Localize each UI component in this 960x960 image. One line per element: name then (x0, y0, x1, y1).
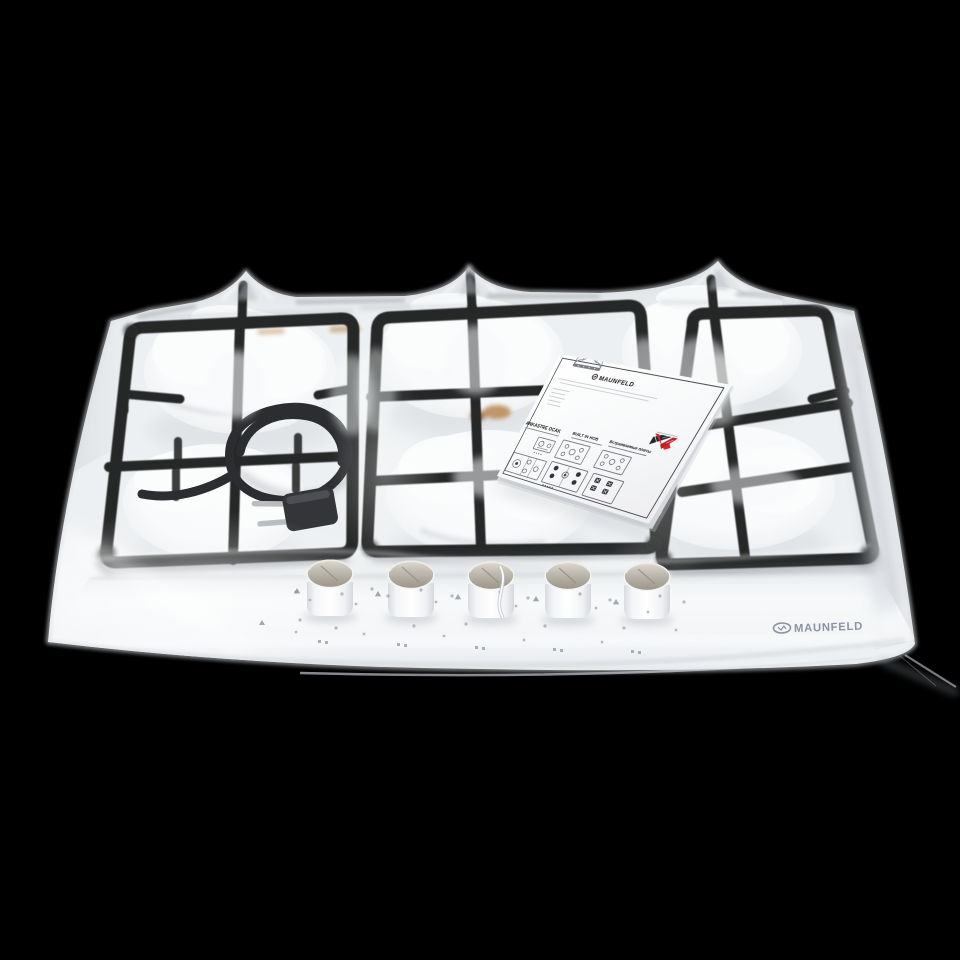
svg-text:MAUNFELD: MAUNFELD (794, 621, 863, 635)
